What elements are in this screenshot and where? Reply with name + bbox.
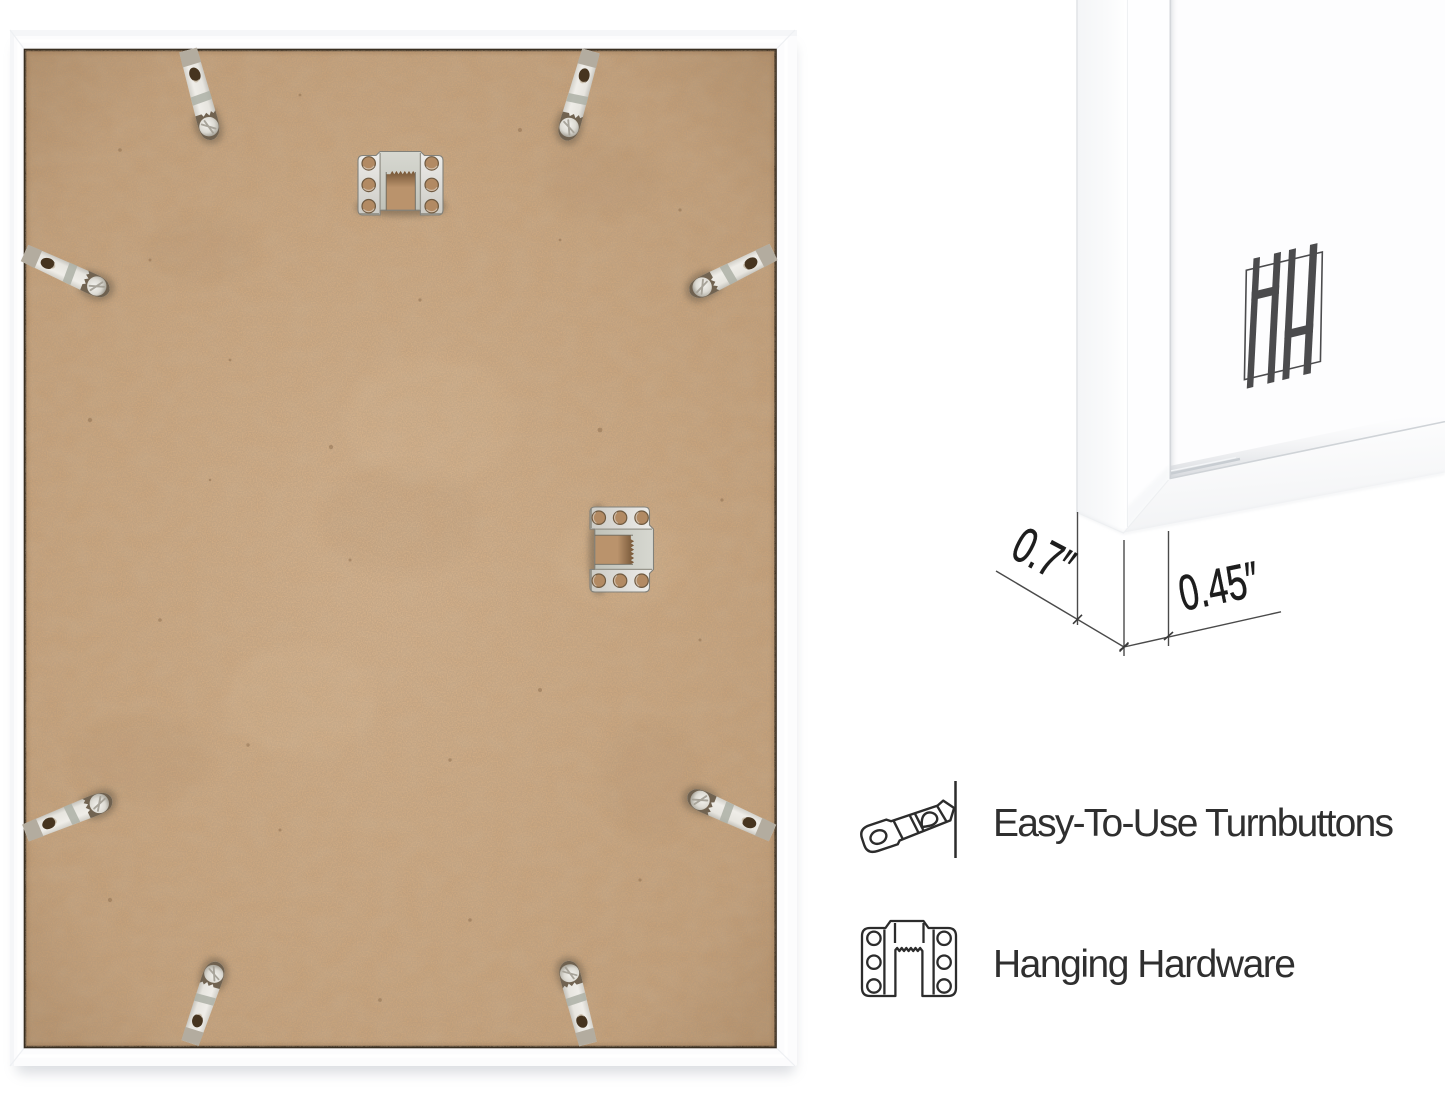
svg-text:Hanging Hardware: Hanging Hardware xyxy=(993,943,1296,986)
svg-text:Easy-To-Use Turnbuttons: Easy-To-Use Turnbuttons xyxy=(993,802,1394,845)
